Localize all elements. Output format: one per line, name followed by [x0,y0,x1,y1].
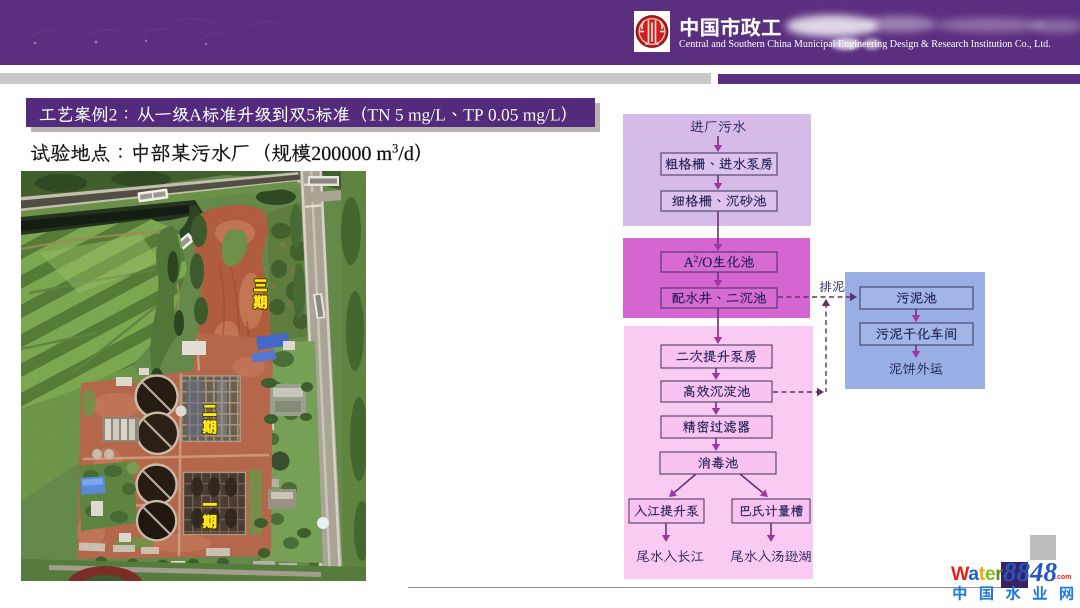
svg-text:Water: Water [951,563,1003,585]
svg-text:.com: .com [1055,574,1071,581]
svg-text:8848: 8848 [1003,557,1058,587]
